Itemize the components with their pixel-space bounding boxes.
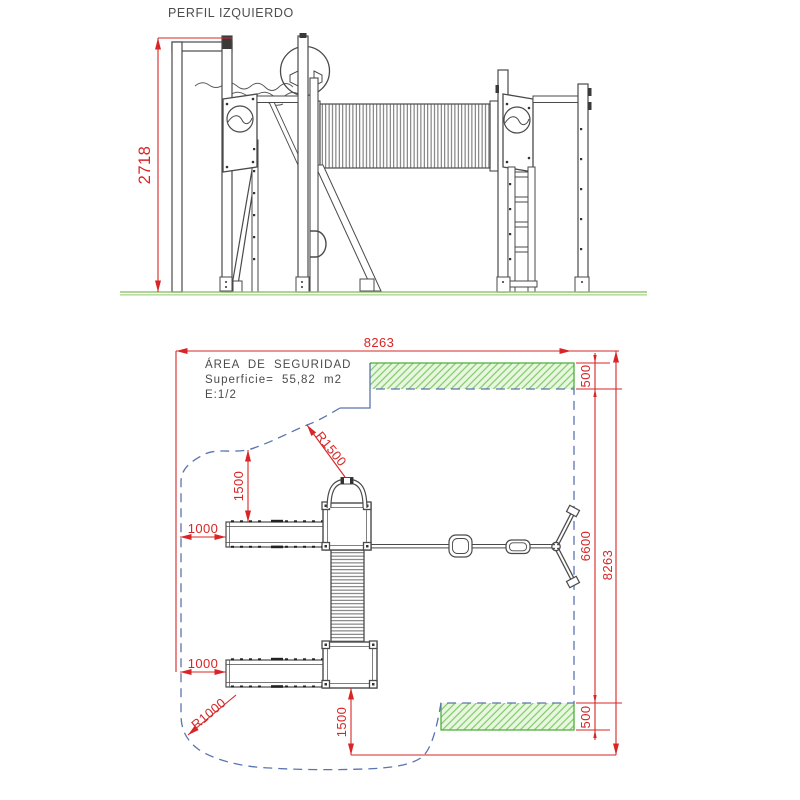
elevation-height-dimension: 2718 (136, 38, 232, 292)
swing-seat-1 (449, 535, 472, 557)
safety-area-label: ÁREA DE SEGURIDAD Superficie= 55,82 m2 E… (205, 358, 351, 403)
dim-1500-lower-label: 1500 (334, 707, 349, 738)
dim-1500-upper-label: 1500 (231, 471, 246, 502)
swing-seat-2 (506, 540, 530, 554)
ladder (503, 167, 537, 292)
slide-lower (226, 658, 328, 688)
ground-line (120, 292, 647, 295)
platform-lower (322, 641, 377, 688)
slide-upper (226, 520, 328, 548)
play-structure-plan (226, 478, 579, 689)
safety-area-scale: E:1/2 (205, 388, 351, 403)
dim-500-bottom-label: 500 (578, 706, 593, 729)
technical-drawing-sheet: PERFIL IZQUIERDO (0, 0, 800, 800)
swing-frame (552, 505, 580, 587)
tower-left (223, 94, 298, 292)
safety-strip-top (370, 363, 574, 389)
dim-6600-label: 6600 (578, 531, 593, 562)
tunnel (331, 550, 364, 642)
dim-1000-lower-label: 1000 (188, 656, 219, 671)
elevation-view: 2718 (120, 28, 660, 314)
safety-area-title: ÁREA DE SEGURIDAD (205, 358, 351, 373)
dim-r1000-label: R1000 (188, 695, 229, 732)
dim-r1500-label: R1500 (313, 428, 350, 469)
corrugated-tube (312, 101, 498, 171)
end-post (578, 84, 592, 292)
dim-2718-label: 2718 (136, 146, 154, 185)
dim-500-top-label: 500 (578, 365, 593, 388)
safety-strip-bottom (441, 703, 574, 730)
safety-area-surface: Superficie= 55,82 m2 (205, 373, 351, 388)
dim-8263-right-label: 8263 (600, 550, 615, 581)
dim-8263-top-label: 8263 (364, 335, 395, 350)
platform-upper (322, 502, 371, 550)
page-title: PERFIL IZQUIERDO (168, 6, 294, 20)
dim-1000-upper-label: 1000 (188, 521, 219, 536)
